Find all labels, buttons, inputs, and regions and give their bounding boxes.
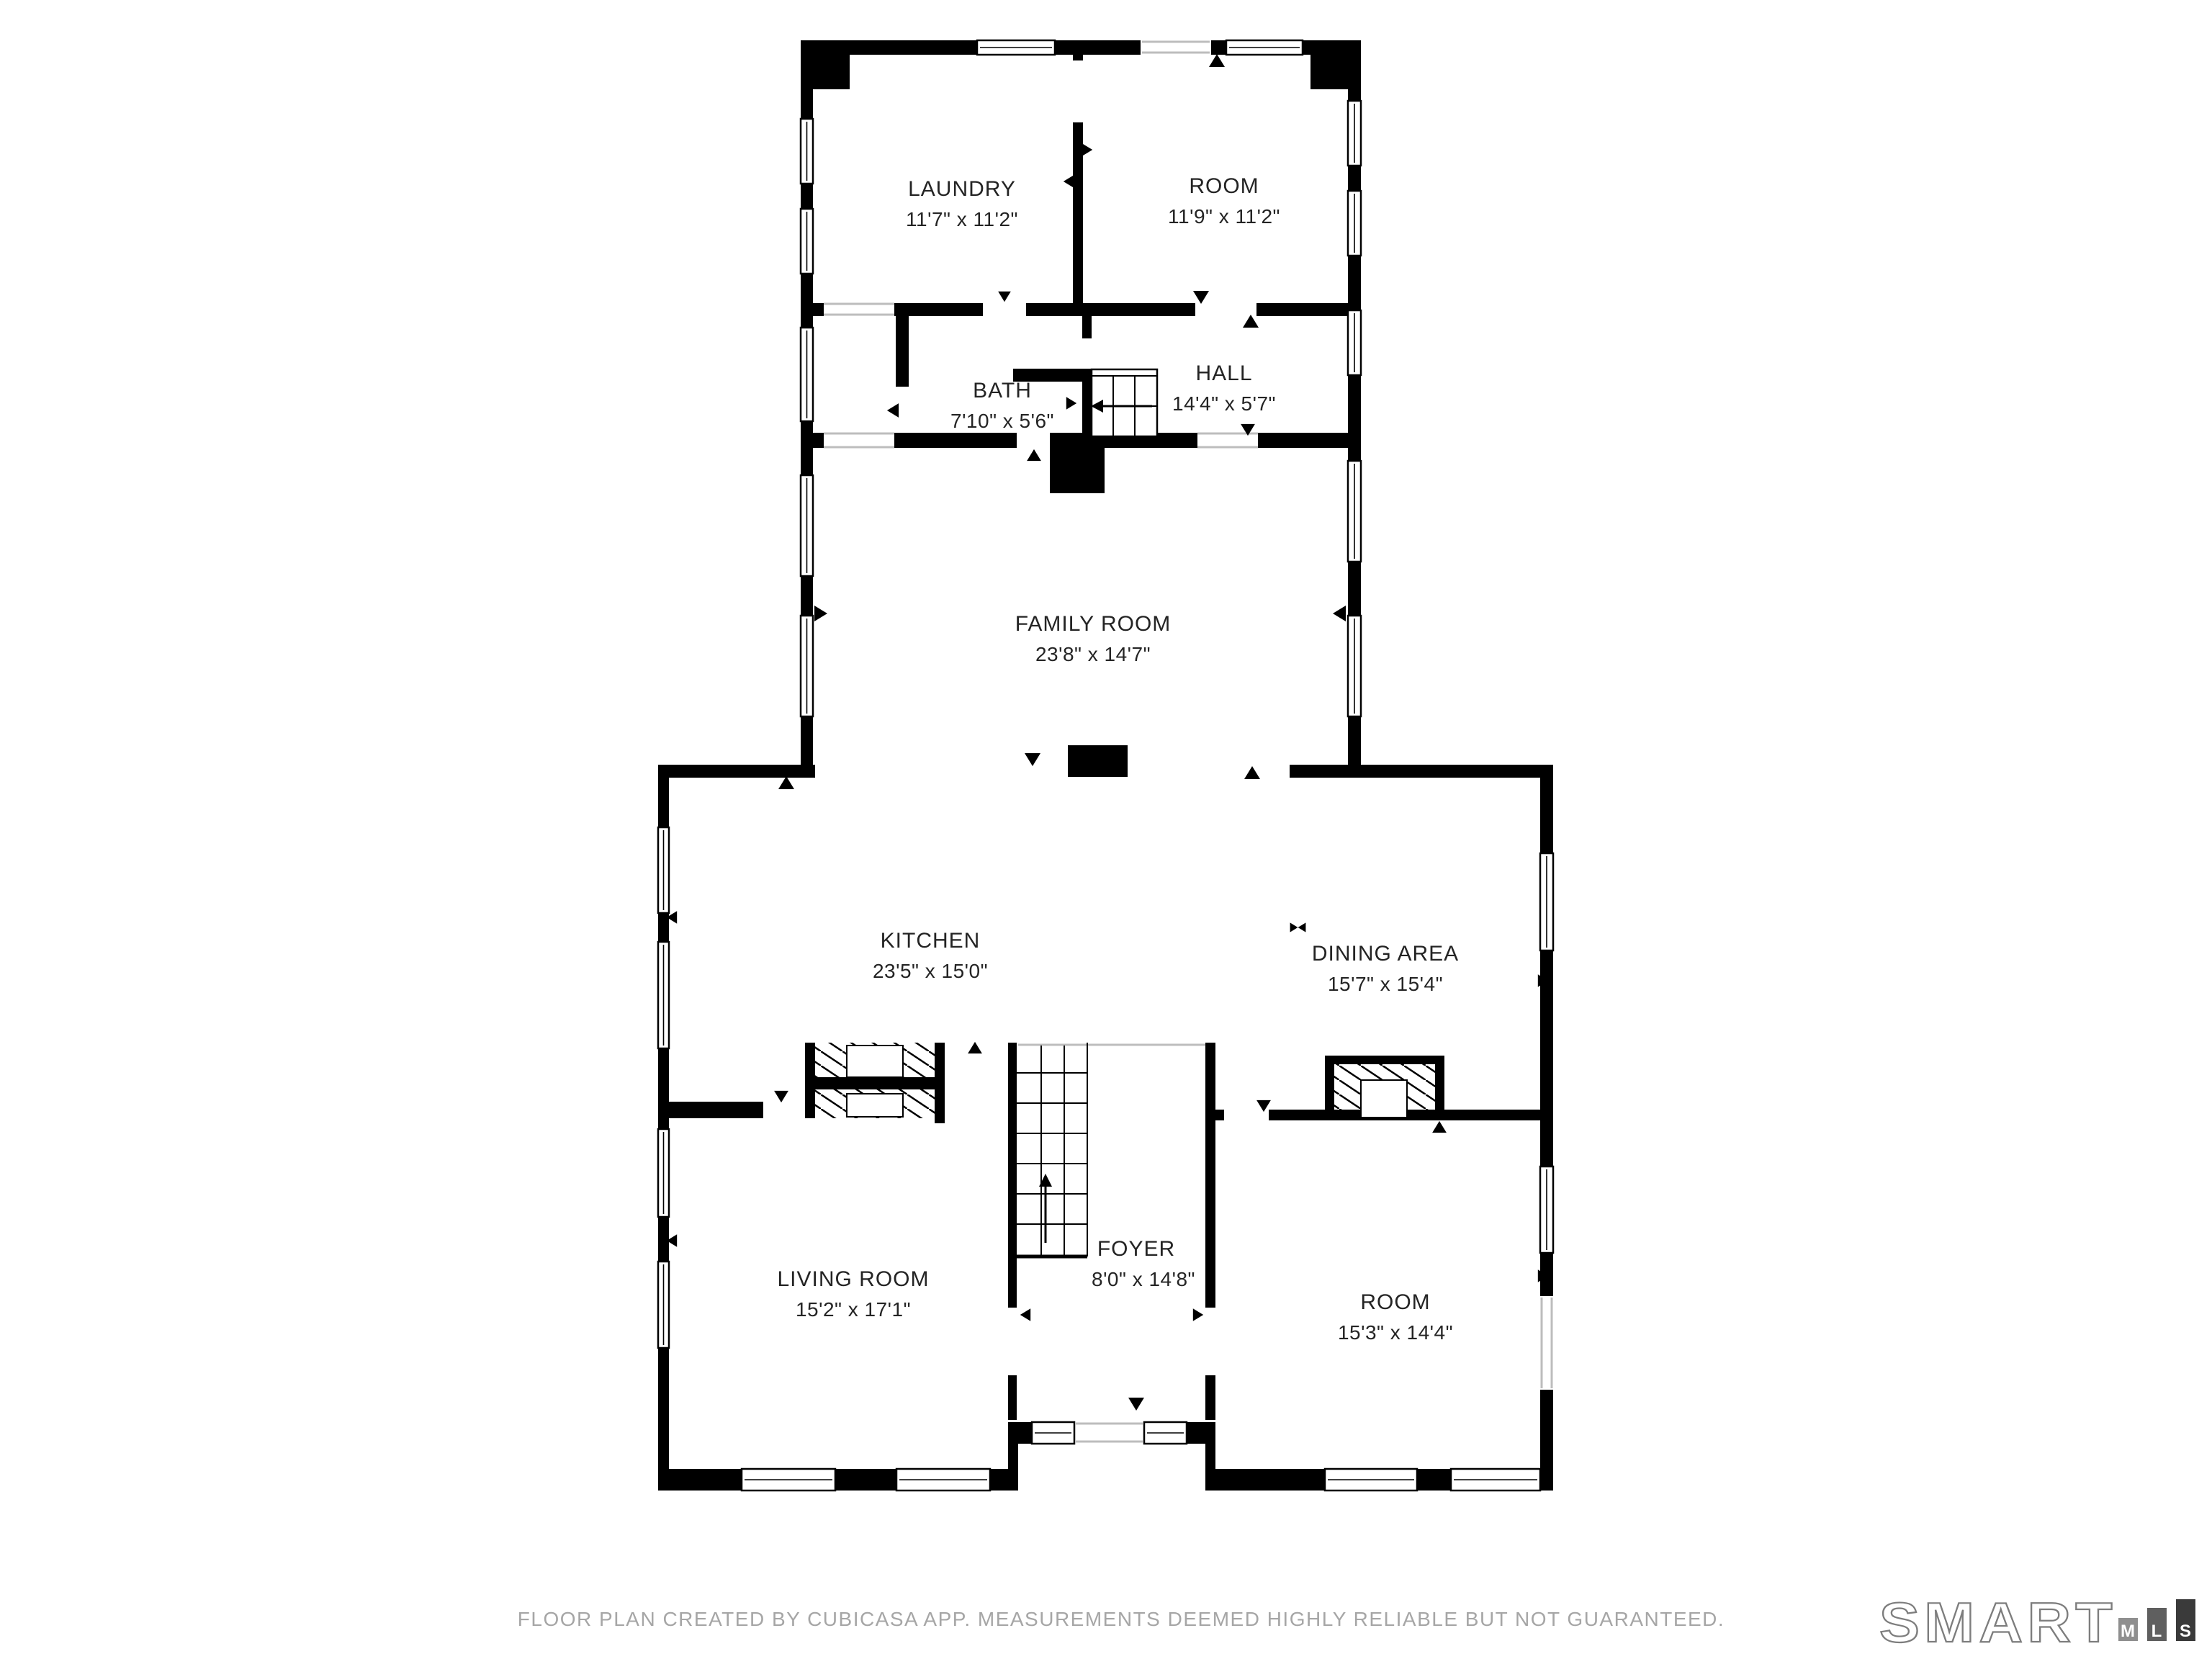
room-label-bath: BATH bbox=[973, 379, 1032, 403]
wall-segment bbox=[1290, 765, 1553, 778]
door-opening bbox=[1224, 1108, 1269, 1122]
logo-letter-m: M bbox=[2121, 1622, 2135, 1641]
room-label-hall: HALL bbox=[1195, 361, 1252, 385]
wall-segment bbox=[1325, 1056, 1334, 1118]
door-opening bbox=[1008, 1308, 1017, 1375]
smartmls-wordmark: SMART bbox=[1879, 1591, 2117, 1654]
room-label-room-lower: ROOM bbox=[1360, 1290, 1430, 1314]
door-arrow-icon bbox=[1082, 143, 1092, 156]
room-label-living-room: LIVING ROOM bbox=[777, 1267, 929, 1291]
room-dims-dining-area: 15'7" x 15'4" bbox=[1328, 973, 1443, 995]
room-dims-bath: 7'10" x 5'6" bbox=[950, 410, 1054, 432]
wall-segment bbox=[1205, 1444, 1215, 1469]
room-dims-room-upper: 11'9" x 11'2" bbox=[1168, 205, 1280, 228]
door-opening bbox=[1195, 302, 1256, 318]
door-opening bbox=[983, 302, 1026, 318]
room-label-laundry: LAUNDRY bbox=[908, 177, 1016, 201]
door-arrow-icon bbox=[1064, 175, 1074, 188]
door-arrow-icon bbox=[1244, 766, 1260, 779]
door-opening bbox=[1205, 1308, 1215, 1375]
door-arrow-icon bbox=[998, 292, 1011, 302]
wall-segment bbox=[658, 765, 815, 778]
door-arrow-icon bbox=[1128, 1398, 1144, 1411]
fireplace-firebox bbox=[1361, 1080, 1407, 1118]
wall-segment bbox=[1050, 433, 1105, 493]
wall-segment bbox=[801, 433, 824, 448]
room-label-foyer: FOYER bbox=[1097, 1237, 1175, 1261]
door-arrow-icon bbox=[887, 403, 899, 418]
door-arrow-icon bbox=[1025, 753, 1040, 766]
door-arrow-icon bbox=[1298, 922, 1306, 932]
door-arrow-icon bbox=[968, 1042, 982, 1053]
room-dims-living-room: 15'2" x 17'1" bbox=[796, 1298, 911, 1321]
door-arrow-icon bbox=[1027, 449, 1041, 461]
door-arrow-icon bbox=[778, 776, 794, 789]
door-arrow-icon bbox=[814, 606, 827, 621]
door-arrow-icon bbox=[1020, 1308, 1030, 1321]
room-label-family-room: FAMILY ROOM bbox=[1015, 612, 1172, 636]
room-dims-family-room: 23'8" x 14'7" bbox=[1035, 643, 1151, 665]
room-dims-foyer: 8'0" x 14'8" bbox=[1092, 1268, 1195, 1290]
floor-plan: LAUNDRY 11'7" x 11'2" ROOM 11'9" x 11'2"… bbox=[0, 0, 2212, 1659]
door-arrow-icon bbox=[1209, 54, 1225, 67]
wall-segment bbox=[1068, 745, 1128, 777]
logo-letter-l: L bbox=[2152, 1622, 2162, 1641]
room-label-room-upper: ROOM bbox=[1189, 174, 1259, 198]
wall-segment bbox=[1082, 382, 1092, 433]
door-arrow-icon bbox=[1333, 606, 1346, 621]
room-dims-room-lower: 15'3" x 14'4" bbox=[1338, 1321, 1453, 1344]
door-arrow-icon bbox=[1290, 922, 1298, 932]
door-arrow-icon bbox=[1066, 397, 1076, 410]
room-dims-hall: 14'4" x 5'7" bbox=[1172, 392, 1276, 415]
kitchen-island-sink bbox=[847, 1094, 903, 1117]
wall-segment bbox=[1325, 1056, 1444, 1064]
door-arrow-icon bbox=[774, 1091, 788, 1102]
room-dims-kitchen: 23'5" x 15'0" bbox=[873, 960, 988, 982]
room-dims-laundry: 11'7" x 11'2" bbox=[906, 208, 1018, 230]
footer-disclaimer: FLOOR PLAN CREATED BY CUBICASA APP. MEAS… bbox=[518, 1608, 1725, 1630]
smartmls-logo: SMART M L S bbox=[1879, 1591, 2195, 1654]
door-arrow-icon bbox=[1432, 1121, 1447, 1133]
logo-letter-s: S bbox=[2180, 1622, 2191, 1641]
door-opening bbox=[1017, 431, 1050, 449]
door-opening bbox=[1073, 60, 1083, 122]
kitchen-island-sink bbox=[847, 1046, 903, 1077]
door-arrow-icon bbox=[1193, 1308, 1203, 1321]
wall-segment bbox=[1082, 316, 1092, 338]
wall-segment bbox=[1008, 1444, 1018, 1469]
room-label-dining-area: DINING AREA bbox=[1312, 942, 1459, 966]
wall-segment bbox=[658, 1102, 763, 1118]
wall-segment bbox=[805, 1077, 945, 1089]
room-label-kitchen: KITCHEN bbox=[881, 929, 981, 953]
wall-segment bbox=[1435, 1056, 1444, 1118]
